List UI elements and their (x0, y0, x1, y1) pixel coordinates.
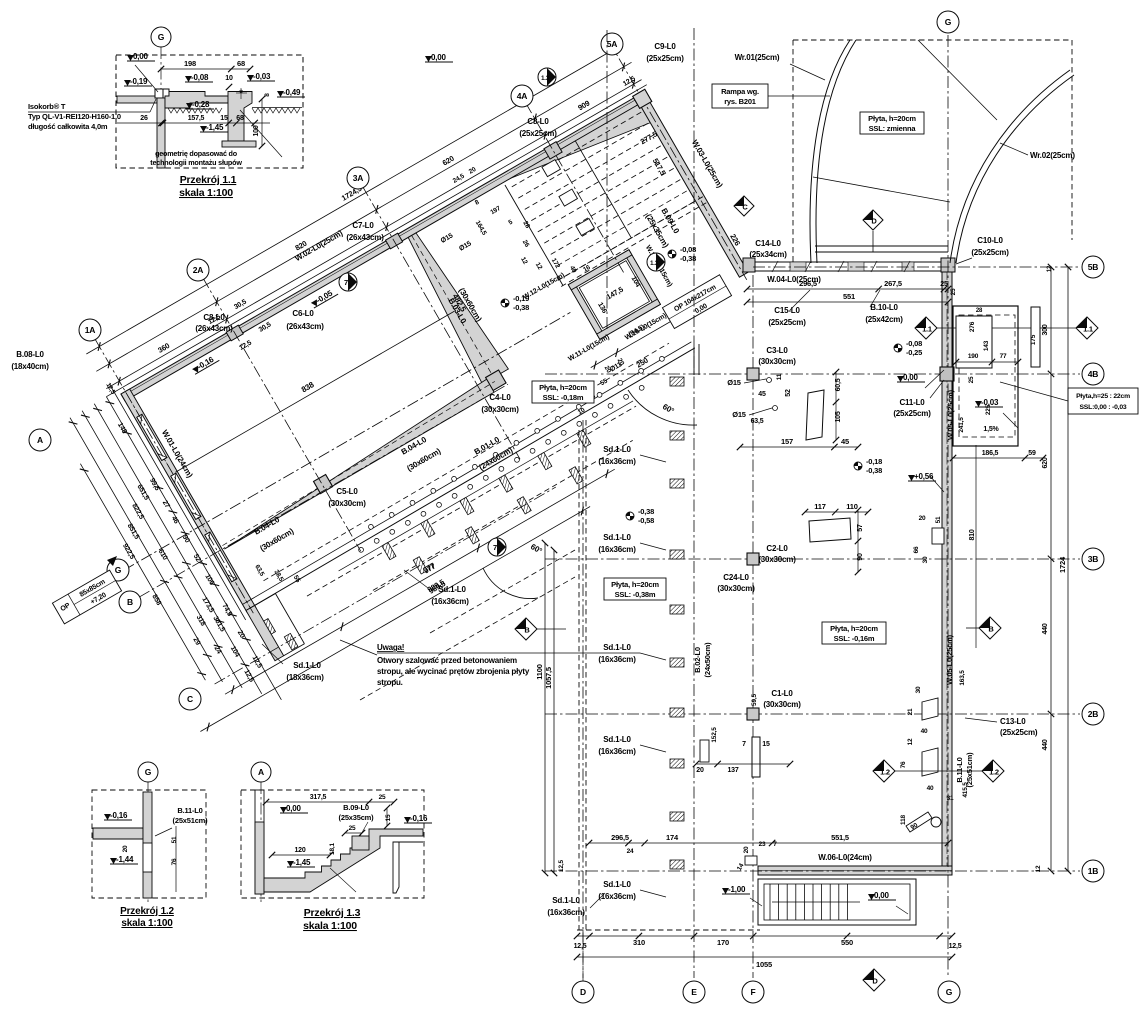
svg-text:-0,38: -0,38 (680, 254, 696, 263)
svg-text:D: D (580, 987, 586, 997)
svg-text:B.10-L0: B.10-L0 (870, 303, 898, 312)
svg-text:198: 198 (184, 59, 196, 68)
svg-text:551: 551 (843, 292, 855, 301)
svg-text:0,00: 0,00 (903, 373, 919, 382)
svg-text:296,5: 296,5 (799, 279, 817, 288)
svg-text:59: 59 (1028, 450, 1036, 457)
svg-text:(25x35cm): (25x35cm) (339, 813, 375, 822)
svg-text:C6-L0: C6-L0 (292, 309, 314, 318)
svg-text:15: 15 (385, 814, 392, 821)
svg-text:0,00: 0,00 (874, 891, 890, 900)
svg-text:157: 157 (781, 437, 793, 446)
svg-text:-0,08: -0,08 (680, 245, 696, 254)
svg-text:1724: 1724 (1058, 556, 1067, 573)
svg-text:21: 21 (907, 708, 914, 715)
svg-text:45: 45 (841, 437, 849, 446)
svg-text:15: 15 (220, 115, 228, 122)
svg-text:12,5: 12,5 (574, 943, 587, 950)
svg-text:-0,08: -0,08 (906, 339, 922, 348)
svg-text:(26x43cm): (26x43cm) (195, 324, 233, 333)
svg-text:(25x25cm): (25x25cm) (646, 54, 684, 63)
svg-text:SSL: -0,16m: SSL: -0,16m (834, 634, 875, 643)
svg-text:SSL: -0,38m: SSL: -0,38m (615, 590, 656, 599)
svg-text:F: F (751, 987, 756, 997)
svg-text:10: 10 (225, 75, 233, 82)
svg-text:-0,18: -0,18 (866, 457, 882, 466)
svg-text:40: 40 (927, 785, 934, 792)
svg-text:25: 25 (379, 794, 386, 801)
svg-text:(16x36cm): (16x36cm) (598, 655, 636, 664)
svg-text:24: 24 (627, 848, 634, 855)
svg-text:-1,00: -1,00 (728, 885, 746, 894)
svg-text:geometrię dopasować do: geometrię dopasować do (155, 149, 238, 158)
svg-text:SSL: -0,18m: SSL: -0,18m (543, 393, 584, 402)
svg-text:137: 137 (727, 767, 738, 774)
svg-text:5A: 5A (607, 39, 618, 49)
svg-text:267,5: 267,5 (884, 279, 902, 288)
svg-text:(25x25cm): (25x25cm) (893, 409, 931, 418)
svg-text:Sd.1-L0: Sd.1-L0 (603, 643, 631, 652)
svg-text:25: 25 (940, 281, 948, 288)
svg-text:1.2: 1.2 (880, 768, 890, 777)
svg-text:W.05-L0(25cm): W.05-L0(25cm) (946, 389, 955, 440)
svg-text:7: 7 (344, 278, 348, 287)
svg-text:-0,38: -0,38 (638, 507, 654, 516)
svg-text:440: 440 (1042, 623, 1049, 634)
svg-text:E: E (691, 987, 697, 997)
svg-text:12,5: 12,5 (558, 859, 565, 871)
svg-text:B: B (988, 625, 994, 634)
svg-text:G: G (115, 565, 122, 575)
svg-text:317,5: 317,5 (310, 794, 327, 801)
svg-text:(16x36cm): (16x36cm) (431, 597, 469, 606)
svg-text:174: 174 (666, 833, 679, 842)
svg-text:12: 12 (1035, 865, 1042, 872)
svg-text:77: 77 (1000, 353, 1007, 360)
svg-text:(26x43cm): (26x43cm) (286, 322, 324, 331)
svg-text:-0,03: -0,03 (253, 72, 271, 81)
svg-text:1.3: 1.3 (541, 76, 550, 82)
svg-text:Ø15: Ø15 (732, 410, 746, 419)
svg-text:40: 40 (921, 728, 928, 735)
svg-text:20: 20 (919, 515, 926, 522)
svg-text:G: G (158, 32, 165, 42)
svg-text:118: 118 (900, 814, 907, 824)
svg-text:G: G (945, 17, 952, 27)
svg-text:296,5: 296,5 (611, 833, 629, 842)
svg-text:Sd.1-L0: Sd.1-L0 (438, 585, 466, 594)
svg-text:Przekrój 1.2: Przekrój 1.2 (120, 906, 174, 917)
svg-text:C14-L0: C14-L0 (755, 239, 781, 248)
svg-text:1100: 1100 (535, 664, 544, 679)
svg-text:(16x36cm): (16x36cm) (598, 545, 636, 554)
svg-text:415,5: 415,5 (962, 782, 969, 798)
svg-text:3B: 3B (1088, 554, 1099, 564)
svg-text:SSL:0,00 : -0,03: SSL:0,00 : -0,03 (1079, 404, 1126, 411)
svg-text:66: 66 (913, 546, 920, 553)
svg-text:B.11-L0: B.11-L0 (177, 806, 202, 815)
svg-text:C24-L0: C24-L0 (723, 573, 749, 582)
svg-text:68: 68 (237, 59, 245, 68)
svg-text:C: C (742, 203, 748, 212)
svg-text:276: 276 (969, 321, 976, 332)
svg-text:1057,5: 1057,5 (544, 667, 553, 689)
svg-text:4B: 4B (1088, 369, 1099, 379)
svg-text:Przekrój 1.1: Przekrój 1.1 (180, 174, 237, 186)
svg-text:Sd.1-L0: Sd.1-L0 (293, 661, 321, 670)
svg-text:C4-L0: C4-L0 (489, 393, 511, 402)
svg-text:Wr.02(25cm): Wr.02(25cm) (1030, 151, 1075, 160)
svg-text:28: 28 (976, 308, 983, 314)
svg-text:stropu.: stropu. (377, 678, 403, 687)
svg-text:20: 20 (122, 845, 129, 852)
svg-text:-0,25: -0,25 (906, 348, 922, 357)
svg-text:D: D (872, 977, 878, 986)
svg-text:190: 190 (968, 353, 979, 360)
svg-text:(30x30cm): (30x30cm) (328, 499, 366, 508)
svg-text:1A: 1A (85, 325, 96, 335)
svg-text:SSL: zmienna: SSL: zmienna (869, 124, 917, 133)
svg-text:110: 110 (846, 502, 858, 511)
svg-text:68: 68 (236, 115, 244, 122)
svg-text:C9-L0: C9-L0 (654, 42, 676, 51)
svg-text:W.05-L0(25cm): W.05-L0(25cm) (945, 634, 954, 685)
svg-text:7: 7 (493, 543, 497, 552)
svg-text:(16x36cm): (16x36cm) (598, 892, 636, 901)
svg-text:Uwaga!: Uwaga! (377, 643, 404, 652)
svg-text:2A: 2A (193, 265, 204, 275)
svg-text:(25x42cm): (25x42cm) (865, 315, 903, 324)
svg-text:Isokorb® T: Isokorb® T (28, 102, 66, 111)
svg-text:-0,28: -0,28 (192, 100, 210, 109)
svg-text:długość całkowita 4,0m: długość całkowita 4,0m (28, 122, 108, 131)
svg-text:A: A (37, 435, 43, 445)
svg-text:(24x50cm): (24x50cm) (703, 642, 712, 678)
svg-text:20: 20 (743, 846, 750, 853)
svg-text:76: 76 (171, 858, 178, 865)
svg-text:620: 620 (1042, 457, 1049, 468)
svg-text:(16x36cm): (16x36cm) (598, 457, 636, 466)
svg-text:(25x51cm): (25x51cm) (173, 816, 209, 825)
svg-text:1.2: 1.2 (989, 768, 999, 777)
svg-text:-0,03: -0,03 (981, 398, 999, 407)
svg-text:1.1: 1.1 (922, 325, 932, 334)
svg-text:rys. B201: rys. B201 (724, 97, 756, 106)
svg-text:0,00: 0,00 (133, 52, 149, 61)
svg-text:51: 51 (935, 516, 942, 523)
svg-text:B.08-L0: B.08-L0 (16, 350, 44, 359)
svg-text:1B: 1B (1088, 866, 1099, 876)
svg-text:63,5: 63,5 (751, 418, 764, 425)
svg-text:18,1: 18,1 (329, 842, 336, 854)
svg-text:(16x36cm): (16x36cm) (598, 747, 636, 756)
svg-text:(25x25cm): (25x25cm) (1000, 728, 1038, 737)
svg-text:(16x36cm): (16x36cm) (547, 908, 585, 917)
svg-text:26: 26 (140, 115, 148, 122)
svg-text:Rampa wg.: Rampa wg. (721, 87, 759, 96)
svg-text:C5-L0: C5-L0 (336, 487, 358, 496)
svg-text:technologii montażu słupów: technologii montażu słupów (150, 158, 242, 167)
svg-text:Ø15: Ø15 (727, 378, 741, 387)
svg-text:W.06-L0(24cm): W.06-L0(24cm) (818, 853, 872, 862)
svg-text:30: 30 (915, 686, 922, 693)
svg-text:(30x30cm): (30x30cm) (717, 584, 755, 593)
svg-text:-0,38: -0,38 (866, 466, 882, 475)
svg-text:Sd.1-L0: Sd.1-L0 (603, 735, 631, 744)
svg-text:G: G (145, 767, 152, 777)
svg-text:3A: 3A (353, 173, 364, 183)
svg-text:1055: 1055 (756, 960, 772, 969)
svg-text:175: 175 (1030, 334, 1037, 345)
svg-text:-0,19: -0,19 (130, 77, 148, 86)
svg-text:(25x25cm): (25x25cm) (768, 318, 806, 327)
svg-text:C2-L0: C2-L0 (766, 544, 788, 553)
svg-text:-0,08: -0,08 (191, 73, 209, 82)
svg-text:45: 45 (758, 391, 766, 398)
svg-text:186,5: 186,5 (982, 450, 999, 457)
svg-text:Otwory szalować przed betonowa: Otwory szalować przed betonowaniem (377, 656, 517, 665)
svg-text:C8-L0: C8-L0 (527, 117, 549, 126)
svg-text:300: 300 (1042, 324, 1049, 335)
svg-text:Płyta, h=20cm: Płyta, h=20cm (539, 383, 587, 392)
svg-text:+0,56: +0,56 (914, 472, 934, 481)
svg-text:B: B (127, 597, 133, 607)
svg-text:2B: 2B (1088, 709, 1099, 719)
svg-text:12,5: 12,5 (949, 943, 962, 950)
svg-text:163,5: 163,5 (959, 670, 966, 686)
svg-text:157,5: 157,5 (188, 115, 205, 122)
svg-text:25: 25 (349, 825, 356, 832)
svg-text:-1,44: -1,44 (116, 855, 134, 864)
svg-text:Sd.1-L0: Sd.1-L0 (552, 896, 580, 905)
svg-text:C7-L0: C7-L0 (352, 221, 374, 230)
svg-text:G: G (946, 987, 953, 997)
svg-text:C8-L0: C8-L0 (203, 313, 225, 322)
svg-text:Sd.1-L0: Sd.1-L0 (603, 533, 631, 542)
svg-text:0,00: 0,00 (431, 53, 447, 62)
svg-text:76: 76 (900, 761, 907, 768)
svg-text:C3-L0: C3-L0 (766, 346, 788, 355)
svg-text:Sd.1-L0: Sd.1-L0 (603, 445, 631, 454)
svg-text:B.11-L0: B.11-L0 (955, 757, 964, 782)
svg-text:117: 117 (814, 502, 826, 511)
svg-text:-1,45: -1,45 (206, 123, 224, 132)
svg-text:-0,16: -0,16 (410, 814, 428, 823)
svg-text:(25x51cm): (25x51cm) (965, 752, 974, 788)
svg-text:Płyta, h=20cm: Płyta, h=20cm (830, 624, 878, 633)
svg-text:31: 31 (947, 795, 954, 802)
svg-text:A: A (258, 767, 264, 777)
svg-text:(25x25cm): (25x25cm) (971, 248, 1009, 257)
svg-text:skala 1:100: skala 1:100 (121, 918, 173, 929)
svg-text:310: 310 (633, 938, 645, 947)
svg-text:52: 52 (785, 389, 792, 397)
svg-text:7: 7 (742, 741, 746, 748)
svg-text:Przekrój 1.3: Przekrój 1.3 (304, 907, 361, 919)
svg-text:120: 120 (294, 847, 305, 854)
svg-text:550: 550 (841, 938, 853, 947)
svg-text:-0,38: -0,38 (513, 303, 529, 312)
svg-text:Płyta,h=25 : 22cm: Płyta,h=25 : 22cm (1076, 393, 1130, 400)
svg-text:(25x34cm): (25x34cm) (749, 250, 787, 259)
svg-text:5B: 5B (1088, 262, 1099, 272)
svg-text:152,5: 152,5 (711, 727, 718, 743)
svg-text:4A: 4A (517, 91, 528, 101)
svg-text:12: 12 (907, 738, 914, 745)
svg-text:241,5: 241,5 (958, 417, 965, 433)
svg-text:C15-L0: C15-L0 (774, 306, 800, 315)
svg-text:30: 30 (922, 556, 929, 563)
svg-text:C13-L0: C13-L0 (1000, 717, 1026, 726)
svg-text:(30x30cm): (30x30cm) (763, 700, 801, 709)
svg-text:skala 1:100: skala 1:100 (179, 187, 233, 199)
svg-text:stropu, ale wycinać prętów zbr: stropu, ale wycinać prętów zbrojenia pły… (377, 667, 530, 676)
svg-text:Wr.01(25cm): Wr.01(25cm) (735, 53, 780, 62)
svg-text:551,5: 551,5 (831, 833, 849, 842)
svg-text:(30x30cm): (30x30cm) (481, 405, 519, 414)
svg-text:C: C (187, 694, 193, 704)
svg-text:Sd.1-L0: Sd.1-L0 (603, 880, 631, 889)
svg-text:(26x43cm): (26x43cm) (346, 233, 384, 242)
svg-text:20: 20 (696, 767, 704, 774)
svg-text:D: D (871, 217, 877, 226)
svg-text:143: 143 (983, 340, 990, 351)
svg-text:1.1: 1.1 (1083, 325, 1093, 334)
svg-text:B.09-L0: B.09-L0 (343, 803, 369, 812)
svg-text:(18x40cm): (18x40cm) (11, 362, 49, 371)
svg-text:(30x30cm): (30x30cm) (758, 357, 796, 366)
svg-text:15: 15 (762, 741, 770, 748)
svg-text:1,5%: 1,5% (983, 426, 999, 433)
svg-text:25: 25 (968, 376, 975, 383)
svg-text:0,00: 0,00 (286, 804, 302, 813)
svg-text:25: 25 (950, 288, 957, 295)
svg-text:-0,58: -0,58 (638, 516, 654, 525)
svg-text:440: 440 (1042, 739, 1049, 750)
svg-text:7: 7 (773, 841, 777, 848)
svg-text:-1,45: -1,45 (293, 858, 311, 867)
svg-text:170: 170 (717, 938, 729, 947)
svg-text:Płyta, h=20cm: Płyta, h=20cm (868, 114, 916, 123)
svg-text:C10-L0: C10-L0 (977, 236, 1003, 245)
svg-text:-0,16: -0,16 (110, 811, 128, 820)
svg-text:(30x30cm): (30x30cm) (758, 555, 796, 564)
svg-text:(25x25cm): (25x25cm) (519, 129, 557, 138)
svg-text:Typ QL-V1-REI120-H160-1.0: Typ QL-V1-REI120-H160-1.0 (28, 112, 121, 121)
svg-text:23: 23 (759, 841, 766, 848)
svg-text:11: 11 (776, 373, 783, 380)
svg-text:skala 1:100: skala 1:100 (303, 920, 357, 932)
svg-text:810: 810 (969, 529, 976, 540)
svg-text:B: B (524, 626, 530, 635)
svg-text:51: 51 (171, 836, 178, 843)
svg-text:1.3: 1.3 (650, 261, 659, 267)
svg-text:59,5: 59,5 (751, 693, 758, 705)
svg-text:C1-L0: C1-L0 (771, 689, 793, 698)
svg-text:-0,49: -0,49 (283, 88, 301, 97)
svg-text:C11-L0: C11-L0 (899, 398, 925, 407)
svg-text:Płyta, h=20cm: Płyta, h=20cm (611, 580, 659, 589)
svg-text:8: 8 (264, 93, 271, 97)
svg-text:(18x36cm): (18x36cm) (286, 673, 324, 682)
